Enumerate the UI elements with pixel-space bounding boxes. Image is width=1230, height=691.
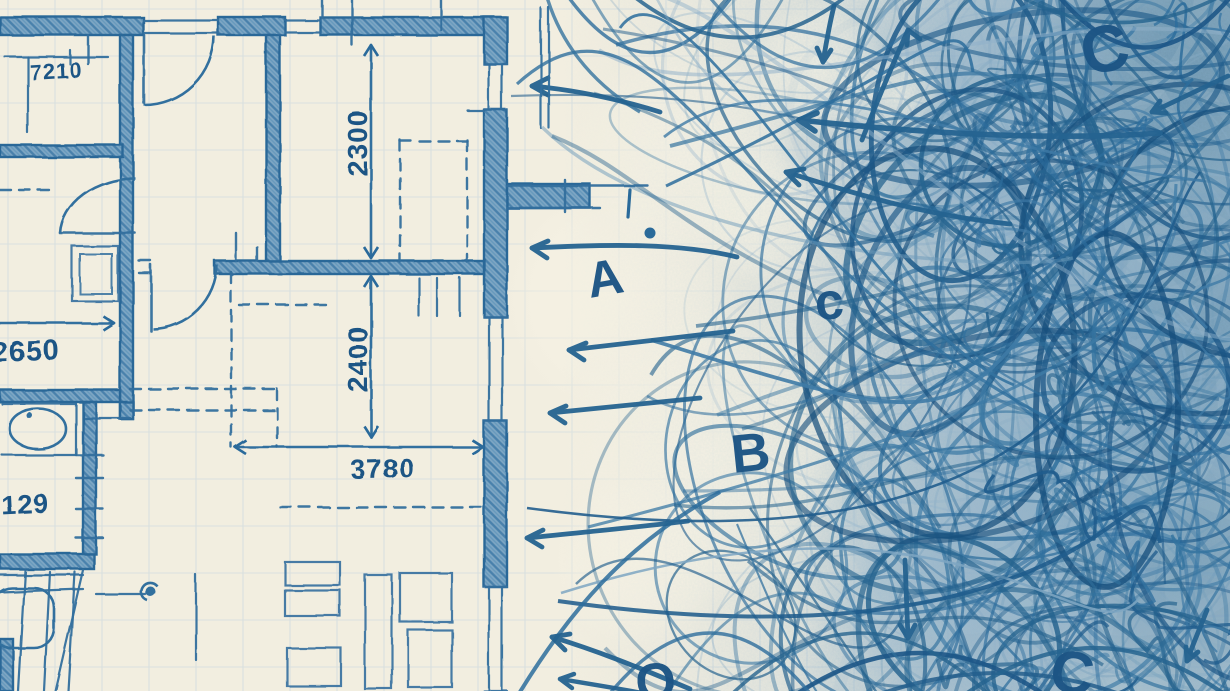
svg-text:2300: 2300	[342, 110, 373, 176]
svg-text:2400: 2400	[342, 326, 373, 392]
svg-text:7210: 7210	[29, 57, 83, 85]
svg-text:2650: 2650	[0, 335, 61, 369]
svg-text:129: 129	[1, 489, 51, 521]
svg-text:O: O	[633, 652, 678, 691]
svg-text:3780: 3780	[350, 453, 415, 485]
svg-text:C: C	[1046, 637, 1098, 691]
svg-text:B: B	[728, 421, 773, 485]
svg-text:c: c	[813, 272, 846, 332]
